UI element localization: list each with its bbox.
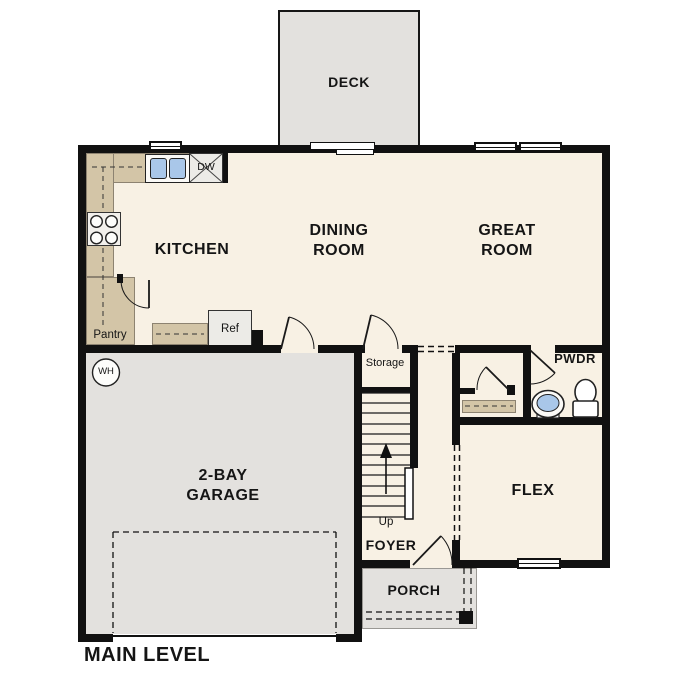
- wall-hall-top-a: [402, 345, 418, 353]
- flex-window: [517, 558, 561, 569]
- porch-post: [459, 611, 473, 624]
- stove: [87, 212, 121, 246]
- pantry-label: Pantry: [85, 329, 135, 341]
- dishwasher-label: DW: [189, 161, 223, 173]
- counter-end-cap: [223, 153, 228, 183]
- garage-label: 2-BAY GARAGE: [158, 466, 288, 506]
- wall-garage-right: [354, 353, 362, 634]
- wall-powder-flex-divider: [452, 417, 610, 425]
- water-heater-label: WH: [92, 366, 120, 377]
- wall-foyer-bottom: [354, 560, 410, 568]
- wall-garage-bottom-right: [336, 634, 362, 642]
- deck-label: DECK: [306, 74, 392, 92]
- powder-label: PWDR: [543, 351, 607, 367]
- garage-label-line2: GARAGE: [158, 486, 288, 506]
- dining-room-label: DINING ROOM: [284, 221, 394, 261]
- wall-garage-top-b: [318, 345, 365, 353]
- wall-garage-bottom-left: [78, 634, 113, 642]
- floor-plan: DECK KITCHEN DINING ROOM GREAT ROOM 2-BA…: [0, 0, 687, 687]
- wall-exterior-left: [78, 145, 86, 642]
- great-room-label-line2: ROOM: [452, 241, 562, 261]
- great-room-label: GREAT ROOM: [452, 221, 562, 261]
- foyer-label: FOYER: [347, 537, 435, 555]
- kitchen-counter-lower: [152, 323, 208, 345]
- closet-shelf: [462, 400, 516, 413]
- deck-sliding-door-inner: [336, 149, 374, 155]
- garage-door-sill: [113, 635, 336, 637]
- kitchen-label: KITCHEN: [137, 240, 247, 260]
- wall-garage-top-a: [78, 345, 281, 353]
- dining-room-label-line1: DINING: [284, 221, 394, 241]
- refrigerator-label: Ref: [208, 323, 252, 335]
- wall-closet-divider: [460, 388, 475, 394]
- wall-powder-left: [523, 358, 531, 417]
- sink-basin-left: [150, 158, 167, 179]
- wall-stairs-right: [410, 353, 418, 468]
- great-room-window-2: [519, 142, 562, 152]
- wall-pantry-stub: [117, 274, 123, 283]
- wall-flex-left-upper: [452, 353, 460, 445]
- wall-storage-bottom: [362, 387, 410, 393]
- wall-powder-door-stub: [523, 345, 531, 358]
- kitchen-window: [149, 141, 182, 151]
- storage-label: Storage: [358, 357, 412, 369]
- dining-room-label-line2: ROOM: [284, 241, 394, 261]
- great-room-label-line1: GREAT: [452, 221, 562, 241]
- sink-basin-right: [169, 158, 186, 179]
- great-room-window-1: [474, 142, 517, 152]
- wall-closet-stub: [507, 385, 515, 395]
- plan-title: MAIN LEVEL: [84, 643, 304, 668]
- wall-kitchen-stub: [252, 330, 263, 353]
- flex-label: FLEX: [488, 481, 578, 501]
- garage-label-line1: 2-BAY: [158, 466, 288, 486]
- wall-hall-top-b: [455, 345, 530, 353]
- up-label: Up: [366, 516, 406, 528]
- porch-label: PORCH: [370, 582, 458, 600]
